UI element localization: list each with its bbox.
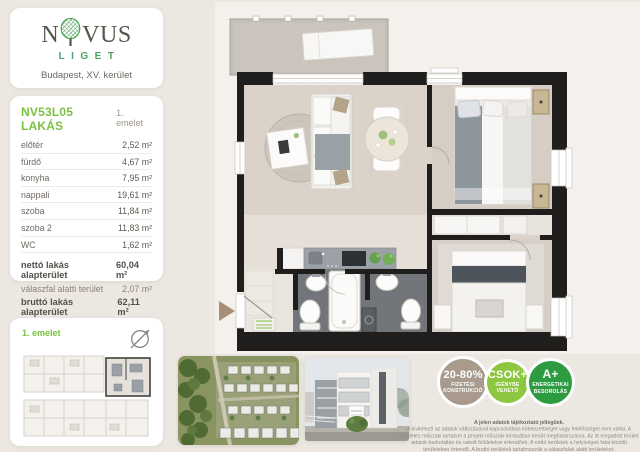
bench [476,300,503,317]
wc-toilet [401,299,421,329]
unit-title: NV53L05 LAKÁS [21,105,116,133]
room-row: előtér2,52 m² [21,137,152,154]
logo-card: N VUS LIGET Budapest, XV. kerüle [10,8,163,88]
disclaimer: A jelen adatok tájékoztató jellegűek. A … [399,420,639,452]
badge-csok: CSOK+ IGÉNYBE VEHETŐ [484,359,531,406]
logo-text-right: VUS [82,23,132,47]
room-row: nappali19,61 m² [21,187,152,204]
bedroom1-bed [455,87,531,204]
mini-floor-plan [18,350,155,447]
total-row-valaszfal: válaszfal alatti terület2,07 m² [21,282,152,296]
compass-icon[interactable] [127,326,153,352]
wardrobe [503,216,527,234]
badge-payment: 20-80% FIZETÉSI KONSTRUKCIÓ [437,356,489,408]
washing-machine [362,308,376,332]
room-row: WC1,62 m² [21,237,152,254]
room-row: fürdő4,67 m² [21,154,152,171]
top-window [427,68,462,83]
logo-location: Budapest, XV. kerület [10,70,163,81]
kitchen-counter [281,248,396,269]
right-window-bedroom1 [551,148,572,188]
unit-info-card: NV53L05 LAKÁS 1. emelet előtér2,52 m² fü… [10,96,163,281]
badge-group: 20-80% FIZETÉSI KONSTRUKCIÓ CSOK+ IGÉNYB… [437,356,575,408]
sofa [311,94,352,189]
room-row: szoba 211,83 m² [21,220,152,237]
coffee-table [267,128,309,170]
nightstand [434,305,451,329]
plant [370,253,381,264]
room-row: konyha7,95 m² [21,170,152,187]
sun-lounger [302,29,374,61]
nightstand [526,305,543,329]
disclaimer-title: A jelen adatok tájékoztató jellegűek. [399,420,639,427]
balcony-door [273,74,363,83]
logo: N VUS [10,20,163,50]
total-row-netto: nettó lakás alapterület60,04 m² [21,258,152,282]
disclaimer-body: A kivitelező az adatok változásával kapc… [400,427,639,452]
thumbnail-floor-label: 1. emelet [22,328,61,338]
bath-toilet [300,300,320,330]
tree-icon [60,18,81,51]
floor-thumbnail-card: 1. emelet [10,318,163,446]
badge-energy: A+ ENERGETIKAI BESOROLÁS [526,358,575,407]
logo-subtitle: LIGET [10,51,163,62]
wc-sink [376,274,398,291]
bedroom2-bed [452,251,526,332]
unit-floor: 1. emelet [116,108,152,128]
plant [383,253,395,265]
balcony-area [230,16,388,75]
doormat [253,318,275,331]
bath-sink [306,275,326,291]
aerial-site-photo [178,356,299,445]
left-window [235,142,245,174]
logo-text-left: N [41,23,59,47]
building-render-photo [305,358,409,441]
right-window-bedroom2 [551,296,572,338]
total-row-brutto: bruttó lakás alapterület62,11 m² [21,295,152,319]
bathtub [329,271,360,331]
floor-plan [215,2,640,354]
room-row: szoba11,84 m² [21,203,152,220]
